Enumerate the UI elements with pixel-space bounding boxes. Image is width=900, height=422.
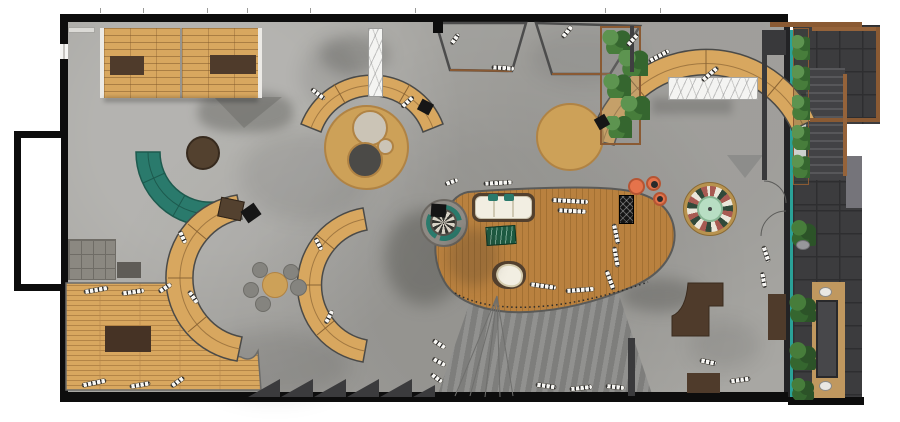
- wood-trim: [843, 74, 847, 176]
- square-stool: [217, 197, 245, 222]
- counter-small-bottom: [687, 373, 720, 393]
- fountain-drain: [708, 207, 712, 211]
- clothing-rail: [314, 237, 324, 250]
- clothing-rail: [445, 178, 459, 186]
- sofa-pillow: [488, 194, 498, 201]
- dim-tick: [660, 8, 661, 13]
- clothing-rail: [122, 288, 144, 295]
- plant: [792, 34, 810, 60]
- sofa-pillow: [504, 194, 514, 201]
- pouf: [283, 264, 299, 280]
- clothing-rail: [762, 246, 771, 262]
- partition-wall: [762, 30, 767, 180]
- counter-wall-right: [768, 294, 786, 340]
- deck-rug: [105, 326, 151, 352]
- clothing-rail: [401, 95, 415, 108]
- plant: [603, 74, 631, 98]
- clothing-rail: [530, 282, 556, 290]
- clothing-rail: [324, 310, 334, 324]
- plant: [792, 124, 810, 150]
- clothing-rail: [552, 198, 588, 204]
- dim-tick: [143, 8, 144, 13]
- wall-vent: [68, 27, 95, 33]
- wood-trim: [876, 27, 880, 122]
- plant: [792, 64, 810, 90]
- display-platform-trim-right: [258, 28, 262, 98]
- clothing-rail: [730, 377, 750, 384]
- round-rug-plain: [536, 103, 604, 171]
- clothing-rail: [760, 272, 767, 287]
- display-rug-right: [210, 55, 256, 74]
- clothing-rail: [187, 290, 198, 304]
- pouf: [290, 279, 307, 296]
- stool-oval: [819, 287, 832, 297]
- palm-plant: [788, 294, 816, 322]
- clothing-rail: [84, 286, 108, 294]
- counter-shadow: [652, 98, 732, 114]
- entry-tiles: [68, 239, 116, 280]
- clothing-rail: [612, 247, 619, 267]
- dim-tick: [207, 8, 208, 13]
- display-rack-lattice: [619, 195, 634, 224]
- wall-stub: [628, 338, 635, 396]
- round-side-table: [186, 136, 220, 170]
- dim-tick: [310, 8, 311, 13]
- pouf: [243, 282, 259, 298]
- clothing-rail: [158, 283, 172, 294]
- wood-trim: [812, 27, 880, 31]
- clothing-rail: [605, 270, 616, 290]
- stool-oval: [796, 240, 810, 250]
- clothing-rail: [570, 385, 592, 391]
- clothing-rail: [484, 180, 512, 185]
- display-rug-left: [110, 56, 144, 75]
- palm-plant: [788, 342, 816, 370]
- plant: [604, 116, 632, 138]
- clothing-rail: [492, 65, 514, 71]
- floor-plan: [0, 0, 900, 422]
- display-platform-shadow: [104, 97, 258, 102]
- entry-mat: [117, 262, 141, 278]
- clothing-rail: [606, 384, 624, 390]
- pouf-orange: [628, 178, 645, 195]
- clothing-rail: [561, 25, 573, 38]
- dim-tick: [605, 8, 606, 13]
- clothing-rail: [430, 373, 443, 384]
- dim-tick: [415, 8, 416, 13]
- platform-shadow-patch: [448, 228, 498, 286]
- wall-stub: [630, 26, 634, 72]
- counter-marble: [668, 77, 758, 100]
- clothing-rail: [612, 224, 620, 244]
- dim-tick: [100, 8, 101, 13]
- furniture-layer: [0, 0, 900, 422]
- clothing-rail: [82, 379, 106, 388]
- clothing-rail: [536, 383, 556, 390]
- clothing-rail: [558, 208, 586, 213]
- display-platform-trim-left: [100, 28, 104, 98]
- wall-stub: [433, 19, 443, 33]
- pouf: [255, 296, 271, 312]
- bench-segment-black: [417, 99, 434, 116]
- clothing-rail: [432, 339, 446, 350]
- display-platform-divider: [180, 28, 182, 98]
- clothing-rail: [130, 381, 150, 388]
- clothing-rail: [178, 230, 187, 243]
- dim-tick: [247, 8, 248, 13]
- rug-cushion-dark: [347, 142, 383, 178]
- terrace-bench-long: [816, 300, 838, 378]
- stool-oval: [819, 381, 832, 391]
- clothing-rail: [700, 358, 716, 365]
- pouf: [252, 262, 268, 278]
- palm-plant: [790, 378, 814, 400]
- clothing-rail: [170, 376, 185, 388]
- clothing-rail: [566, 287, 594, 293]
- fitting-mirror-marble: [368, 28, 383, 97]
- clothing-rail: [648, 49, 669, 63]
- pouf-orange-dot: [651, 181, 658, 188]
- plant: [792, 94, 810, 120]
- plant: [792, 154, 810, 178]
- display-box-black: [431, 203, 447, 217]
- clothing-rail: [450, 33, 460, 45]
- pouf-orange-dot: [657, 196, 663, 202]
- clothing-rail: [310, 87, 325, 100]
- clothing-rail: [432, 357, 446, 367]
